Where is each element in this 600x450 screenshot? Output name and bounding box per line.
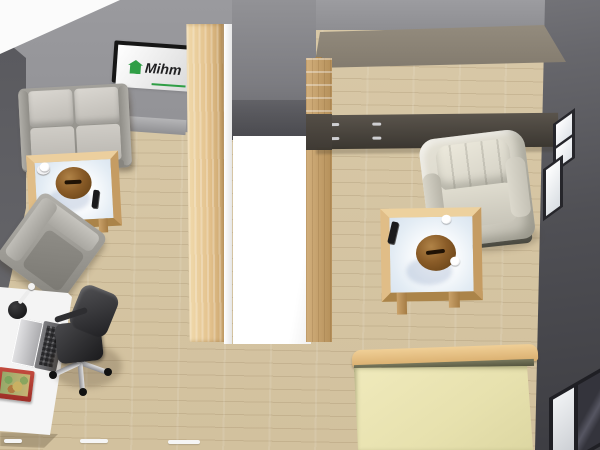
wall-shadow-band — [232, 100, 316, 140]
brand-text: Mihm — [144, 60, 182, 79]
house-logo-icon — [128, 59, 144, 74]
sofa-back-cushion — [28, 89, 74, 127]
coffee-table-bedroom[interactable] — [380, 207, 483, 302]
remote-control[interactable] — [387, 221, 399, 244]
table-leg — [397, 292, 407, 314]
bed[interactable] — [348, 346, 540, 450]
chair-caster — [79, 388, 87, 396]
red-box[interactable] — [0, 367, 35, 402]
drawer-handle — [372, 137, 381, 140]
open-white-door[interactable] — [233, 136, 311, 344]
drawer-handle — [372, 123, 381, 126]
mihm-wall-sign[interactable]: Mihm — [112, 40, 191, 87]
wardrobe-side-drawer — [306, 114, 332, 150]
wardrobe-shelf-lines — [306, 58, 332, 116]
bed-blanket — [349, 366, 533, 450]
chair-caster — [104, 368, 112, 376]
office-swivel-chair[interactable] — [48, 286, 124, 402]
remote-control[interactable] — [91, 190, 99, 209]
desk-lamp-joint — [28, 283, 35, 290]
table-leg — [449, 292, 460, 308]
door-frame — [224, 24, 232, 344]
chair-caster — [49, 371, 57, 379]
sofa-back-cushion — [74, 87, 120, 125]
floor-marker — [80, 439, 108, 443]
floor-marker — [168, 440, 200, 444]
tagline-bar — [152, 83, 186, 87]
coffee-cup[interactable] — [441, 215, 451, 224]
coffee-cup[interactable] — [450, 257, 460, 266]
wardrobe-side-panel — [306, 58, 332, 342]
floor-marker — [4, 439, 22, 443]
room-planner-3d-view: Mihm — [0, 0, 600, 450]
divider-cabinet[interactable] — [186, 24, 227, 342]
